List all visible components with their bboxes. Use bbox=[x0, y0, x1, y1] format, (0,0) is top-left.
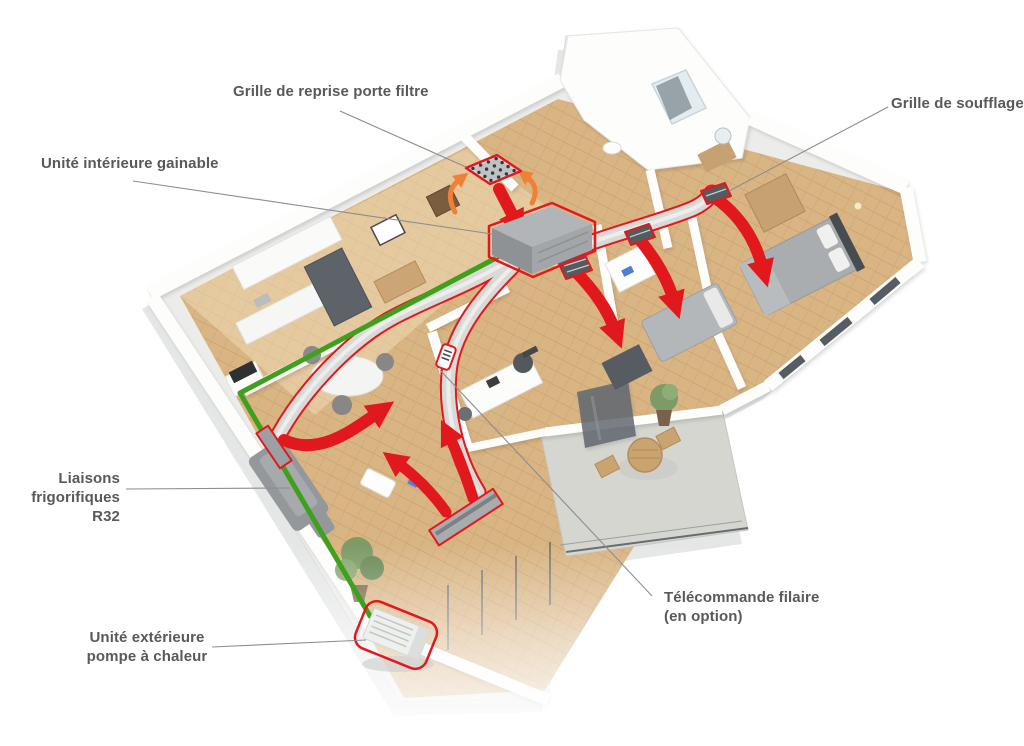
balcony-door-glass bbox=[577, 380, 636, 448]
label-unite-interieure: Unité intérieure gainable bbox=[41, 154, 219, 173]
label-grille-soufflage: Grille de soufflage bbox=[891, 94, 1024, 113]
label-grille-reprise: Grille de reprise porte filtre bbox=[233, 82, 429, 101]
office-chair bbox=[513, 353, 533, 373]
hvac-apartment-diagram: Grille de reprise porte filtre Grille de… bbox=[0, 0, 1024, 746]
toilet bbox=[603, 142, 621, 154]
label-unite-exterieure: Unité extérieure pompe à chaleur bbox=[86, 628, 208, 666]
label-telecommande: Télécommande filaire (en option) bbox=[664, 588, 819, 626]
bedside-lamp bbox=[854, 202, 862, 210]
mirror bbox=[715, 128, 731, 144]
label-liaisons: Liaisons frigorifiques R32 bbox=[0, 469, 120, 527]
balcony-table bbox=[628, 438, 662, 472]
